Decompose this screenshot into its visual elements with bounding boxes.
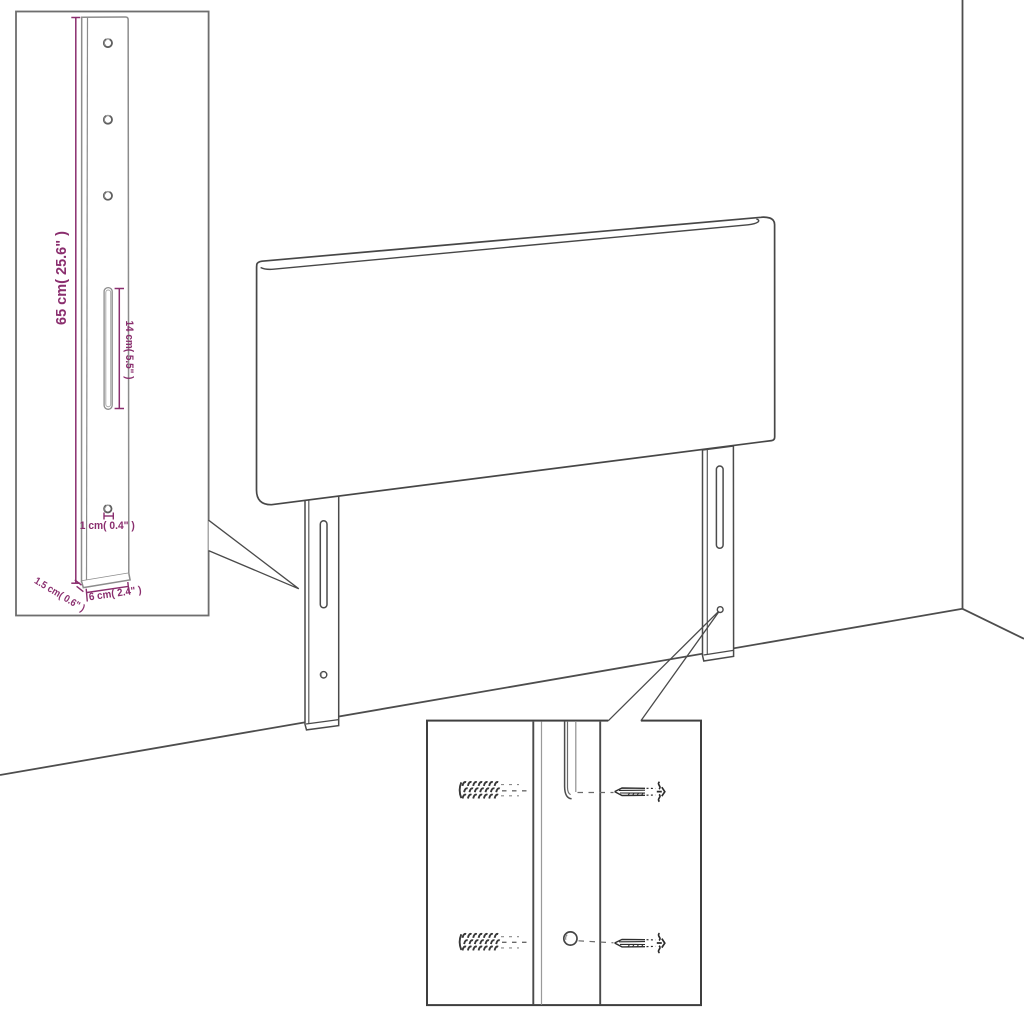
svg-text:1 cm( 0.4" ): 1 cm( 0.4" ) bbox=[80, 520, 135, 532]
svg-text:65 cm( 25.6" ): 65 cm( 25.6" ) bbox=[54, 231, 70, 325]
svg-text:14 cm( 5.5" ): 14 cm( 5.5" ) bbox=[123, 321, 135, 380]
